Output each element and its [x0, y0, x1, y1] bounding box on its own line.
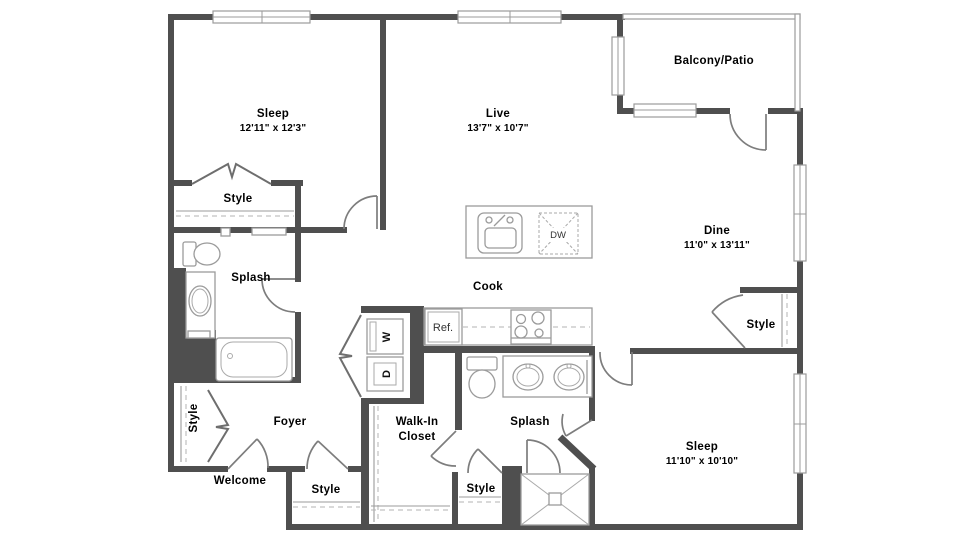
walkin-label-line1: Walk-In — [396, 416, 439, 428]
laundry-bifold-doors — [340, 315, 361, 397]
window-dine — [794, 165, 806, 261]
floor-plan-canvas: DW Ref. W D — [0, 0, 960, 540]
door-style-bath — [468, 449, 502, 473]
live-label: Live — [486, 108, 510, 120]
wall-fixture-symbol — [221, 228, 230, 236]
sleep1-dims: 12'11" x 12'3" — [240, 123, 307, 134]
stove-symbol — [511, 310, 551, 344]
balcony-parapet-top — [623, 14, 800, 19]
wall-sleep1-live — [380, 14, 386, 230]
style-foyer-label: Style — [188, 404, 200, 433]
wall-laundry-bottom — [361, 398, 424, 404]
wall-splash2-diagonal — [560, 437, 594, 469]
balcony-label: Balcony/Patio — [674, 55, 754, 67]
wall-sleep2-top — [630, 348, 800, 354]
laundry-fixtures: W D — [340, 315, 403, 397]
refrigerator-symbol: Ref. — [425, 309, 462, 345]
washer-symbol: W — [367, 319, 403, 354]
window-live — [458, 11, 561, 23]
door-shower — [527, 440, 560, 473]
foyer-label: Foyer — [274, 416, 307, 428]
wall-dine-closet-top — [740, 287, 803, 293]
shower-symbol — [521, 474, 589, 525]
wall-style1-top-right — [271, 180, 303, 186]
wall-foyer-walkin — [361, 398, 369, 530]
live-dims: 13'7" x 10'7" — [467, 123, 528, 134]
wall-splash2-left — [455, 353, 462, 430]
wall-laundry-top — [361, 306, 424, 313]
vanity-symbol-bath1 — [186, 272, 215, 338]
sleep2-dims: 11'10" x 10'10" — [666, 456, 738, 467]
style-entry-label: Style — [312, 484, 341, 496]
door-sleep2 — [600, 352, 632, 385]
room-labels: Sleep 12'11" x 12'3" Live 13'7" x 10'7" … — [188, 55, 776, 496]
wall-entry-closet-west — [286, 466, 292, 530]
wall-foyer-bottom-a — [168, 466, 228, 472]
door-style-dine — [712, 295, 745, 348]
poche-vanity1 — [174, 268, 186, 332]
kitchen-fixtures: DW Ref. — [424, 206, 592, 345]
style-dine-label: Style — [747, 319, 776, 331]
door-style-entry — [307, 441, 348, 469]
toilet-symbol-bath2 — [467, 357, 497, 398]
wall-kitchen-back — [415, 346, 595, 353]
dryer-symbol: D — [367, 357, 403, 391]
dine-label: Dine — [704, 225, 730, 237]
washer-label: W — [381, 331, 393, 342]
towel-rack-symbol — [252, 228, 286, 235]
dishwasher-label: DW — [550, 230, 566, 241]
wall-foyer-bottom-c — [292, 466, 305, 472]
door-splash2-sleep2 — [562, 414, 592, 436]
door-entry — [228, 439, 268, 469]
wall-bath1-right-lower — [295, 312, 301, 380]
toilet-symbol-bath1 — [183, 242, 220, 266]
wall-bath-closet-left — [452, 472, 458, 527]
wall-foyer-bottom-d — [348, 466, 361, 472]
style-sleep1-label: Style — [224, 193, 253, 205]
window-balcony-side — [612, 37, 624, 95]
bifold-style-sleep1 — [192, 164, 271, 184]
splash-main-label: Splash — [231, 272, 271, 284]
splash-master-label: Splash — [510, 416, 550, 428]
wall-sleep2-left — [589, 467, 595, 530]
window-balcony-door — [634, 104, 696, 117]
door-sleep1 — [344, 196, 377, 229]
walkin-label-line2: Closet — [399, 431, 436, 443]
sleep2-label: Sleep — [686, 441, 718, 453]
island-sink-symbol — [478, 213, 522, 253]
welcome-label: Welcome — [214, 475, 266, 487]
window-sleep1 — [213, 11, 310, 23]
wall-left — [168, 14, 174, 472]
bathtub-symbol — [216, 338, 292, 381]
style-bath-label: Style — [467, 483, 496, 495]
sleep1-label: Sleep — [257, 108, 289, 120]
dryer-label: D — [381, 370, 393, 378]
refrigerator-label: Ref. — [433, 322, 453, 334]
window-sleep2 — [794, 374, 806, 473]
cook-label: Cook — [473, 281, 503, 293]
poche-laundry-right — [410, 313, 424, 403]
dine-dims: 11'0" x 13'11" — [684, 240, 750, 251]
balcony-parapet-right — [795, 14, 800, 111]
floor-plan-svg: DW Ref. W D — [0, 0, 960, 540]
door-balcony — [730, 114, 766, 150]
poche-shower — [502, 466, 522, 527]
bifold-style-foyer — [208, 390, 228, 462]
wall-bath1-right-upper — [295, 186, 301, 282]
wall-style1-top-left — [168, 180, 192, 186]
double-vanity-symbol — [503, 356, 592, 397]
